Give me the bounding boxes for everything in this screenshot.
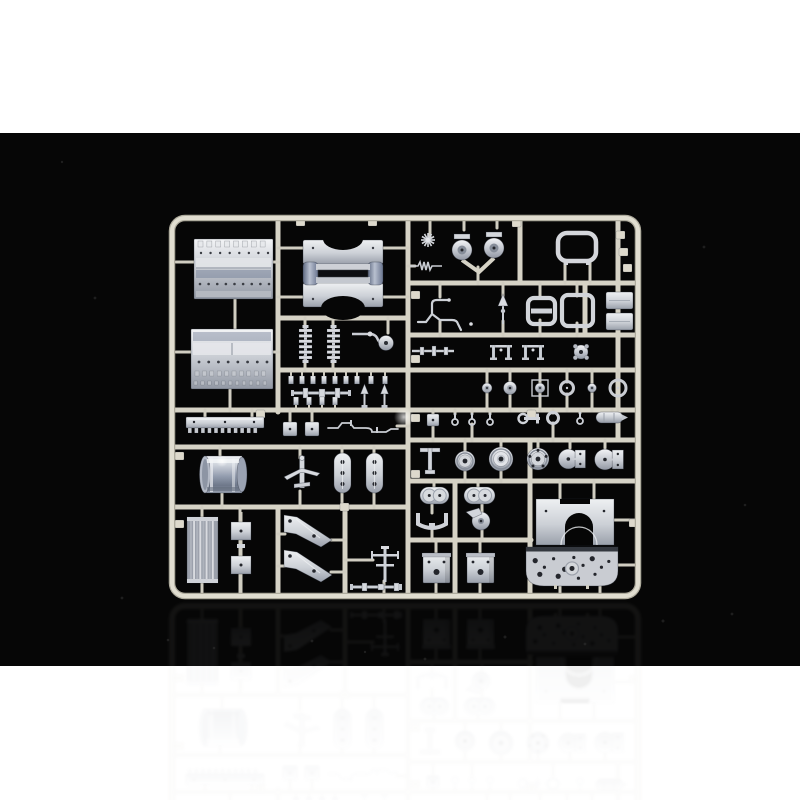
photo-stage [0,0,800,800]
sprue-part-engine-block [191,329,273,389]
sprue-part-wheel-hub [455,451,475,471]
bottom-white-band [0,666,800,800]
dust-speck [424,658,427,661]
dust-speck [731,613,734,616]
dust-speck [504,636,507,639]
moulding-tab [175,520,184,528]
sprue-part-disc [504,382,517,395]
sprue-part-box-holes [422,553,451,583]
sprue-part-cab-brace [303,228,383,320]
dust-speck [61,161,63,163]
top-white-band [0,0,800,133]
dust-speck [703,246,706,249]
sprue-part-spinner [573,344,589,360]
sprue-part-firewall-panel [536,499,614,545]
specular-glint [394,407,414,427]
dust-speck [94,297,97,300]
sprue-part-box [606,313,633,330]
sprue-part-box-holes [466,553,495,583]
dust-speck [364,651,366,653]
sprue-part-twin-oval [420,487,449,504]
sprue-part-caliper-drum [595,449,624,470]
sprue-photo [0,0,800,800]
sprue-part-box [606,292,633,309]
sprue-part-wheel-hub [489,447,513,471]
moulding-tab [340,503,349,511]
dust-speck [121,597,124,600]
sprue-part-engine-block [194,239,273,299]
dust-speck [213,647,216,650]
dust-speck [584,643,587,646]
sprue-part-disc [482,383,492,393]
moulding-tab [411,291,420,299]
sprue-part-disc [588,384,597,393]
specular-glint [216,455,228,467]
dust-speck [662,620,665,623]
dust-speck [167,639,170,642]
sprue-part-small-box [427,414,439,426]
moulding-tab [411,355,420,363]
sprue-part-radiator [187,517,218,583]
moulding-tab [411,470,420,478]
dust-speck [311,640,314,643]
sprue-part-oval-plate [366,453,383,493]
sprue-part-caliper-drum [558,449,585,469]
dust-speck [744,504,747,507]
sprue-part-small-box [305,422,319,436]
sprue-part-twin-oval [464,487,495,504]
sprue-part-small-box [283,422,297,436]
moulding-tab [616,231,625,239]
moulding-tab [623,264,632,272]
sprue-part-wheel-hub [527,448,549,470]
moulding-tab [619,248,628,256]
sprue-part-oval-plate [334,453,351,493]
sprue-part-floor-panel [526,547,618,589]
moulding-tab [175,452,184,460]
